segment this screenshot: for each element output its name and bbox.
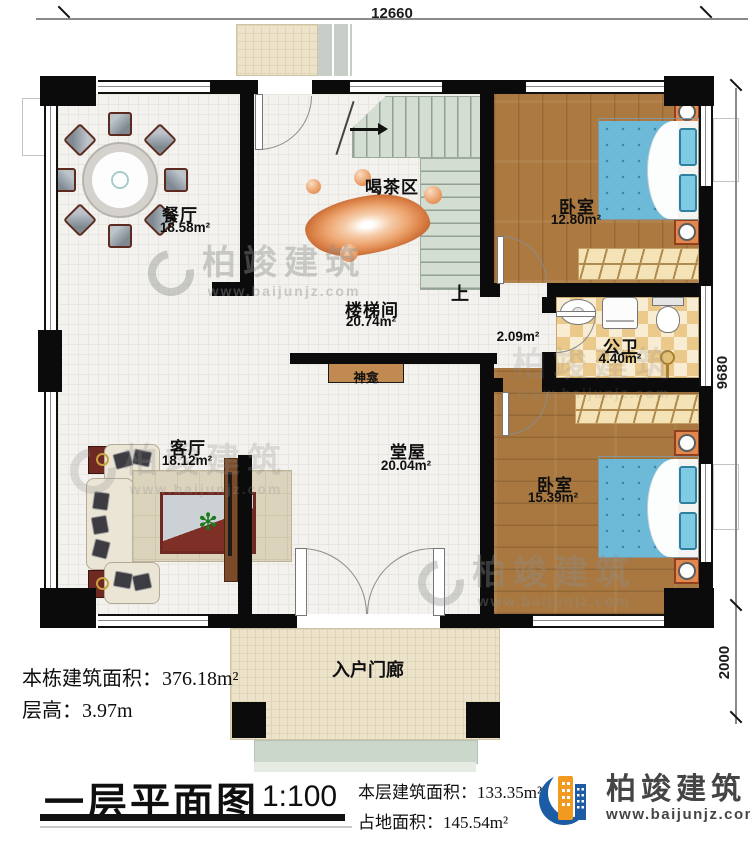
pillow	[679, 174, 697, 212]
wall	[699, 186, 713, 286]
lamp-icon	[678, 223, 696, 241]
wall	[238, 455, 252, 614]
wall	[556, 378, 699, 392]
stair-direction-arrow	[350, 128, 378, 131]
door-leaf	[556, 311, 596, 317]
wall-pier	[38, 330, 62, 392]
porch-column	[466, 702, 500, 738]
stairs-up-label: 上	[451, 280, 469, 306]
door-opening	[258, 80, 312, 94]
wall	[440, 614, 533, 628]
toilet-tank	[652, 297, 684, 306]
nightstand	[674, 558, 700, 584]
plant-icon: ✻	[198, 511, 218, 535]
wall	[290, 353, 497, 364]
wall-corner	[40, 588, 96, 628]
dimension-top: 12660	[371, 5, 413, 22]
shower-head-icon	[660, 350, 675, 365]
title-underline-thin	[40, 826, 352, 828]
brand-name: 柏竣建筑	[606, 773, 750, 806]
sofa-pillow	[113, 571, 134, 590]
pillow	[679, 512, 697, 550]
tv-screen	[228, 472, 232, 556]
dimension-right-upper: 9680	[714, 356, 731, 389]
wall-corner	[664, 76, 714, 106]
pillow	[679, 466, 697, 504]
wall	[480, 94, 494, 297]
wall	[442, 80, 526, 94]
wall	[210, 80, 258, 94]
lamp-icon	[678, 562, 696, 580]
wall	[542, 352, 556, 392]
wall	[208, 614, 297, 628]
wardrobe	[578, 248, 699, 280]
room-label-tea-area: 喝茶区	[365, 173, 419, 198]
sofa-pillow	[132, 448, 153, 467]
tea-stone	[306, 179, 321, 194]
wall	[212, 282, 242, 296]
wall	[542, 297, 556, 313]
dining-chair	[108, 224, 132, 248]
nightstand	[674, 219, 700, 245]
total-area-value: 376.18m²	[162, 668, 239, 690]
door-leaf	[295, 548, 307, 616]
washer-detail	[606, 320, 634, 322]
window	[98, 614, 208, 628]
window	[533, 614, 664, 628]
toilet-bowl	[656, 306, 680, 333]
entrance-opening	[297, 614, 440, 628]
floor-area-line: 本层建筑面积：133.35m²	[358, 778, 542, 803]
rear-landing	[236, 24, 318, 76]
room-area-living: 18.12m²	[162, 453, 212, 468]
wall	[480, 283, 500, 297]
wall	[699, 386, 713, 464]
sofa-pillow	[91, 515, 110, 536]
wall	[547, 283, 699, 297]
window	[350, 80, 442, 94]
bed	[598, 118, 703, 220]
door-leaf	[433, 548, 445, 616]
window	[526, 80, 664, 94]
wardrobe	[575, 394, 699, 424]
porch-label: 入户门廊	[332, 656, 404, 682]
dimension-line-right	[735, 88, 737, 724]
door-leaf	[502, 392, 509, 436]
floor-area-value: 133.35m²	[477, 783, 542, 802]
scale-label: 1:100	[262, 780, 337, 814]
room-area-hall: 20.04m²	[381, 458, 431, 473]
footprint-label: 占地面积：	[358, 813, 443, 832]
dining-chair	[108, 112, 132, 136]
room-area-bathroom: 4.40m²	[599, 351, 642, 366]
dimension-tick	[58, 6, 71, 19]
room-area-bedroom1: 12.80m²	[551, 212, 601, 227]
wall	[480, 353, 494, 614]
dining-chair	[164, 168, 188, 192]
porch-column	[232, 702, 266, 738]
window	[699, 106, 713, 186]
room-area-dining: 18.58m²	[160, 220, 210, 235]
window	[699, 464, 713, 562]
table-decor	[96, 453, 109, 466]
floor-area-label: 本层建筑面积：	[358, 783, 477, 802]
dimension-right-lower: 2000	[716, 646, 733, 679]
tea-stone	[424, 186, 442, 204]
total-area-label: 本栋建筑面积：	[22, 668, 162, 690]
nightstand	[674, 430, 700, 456]
room-area-corridor: 2.09m²	[497, 329, 540, 344]
floor-height-line: 层高：3.97m	[22, 694, 133, 723]
bed	[598, 456, 703, 558]
room-area-stair-hall: 20.74m²	[346, 314, 396, 329]
arrow-head-icon	[378, 123, 388, 135]
floor-plan: 12660 9680 2000	[0, 0, 750, 843]
rear-steps	[318, 24, 352, 76]
door-leaf	[497, 236, 504, 284]
floor-height-value: 3.97m	[82, 700, 133, 722]
brand-logo-icon	[538, 770, 596, 826]
room-area-bedroom2: 15.39m²	[528, 490, 578, 505]
brand-website: www.baijunjz.com	[606, 806, 750, 823]
pillow	[679, 128, 697, 166]
wall-corner	[40, 76, 96, 106]
wall	[240, 94, 254, 296]
lamp-icon	[678, 434, 696, 452]
title-underline	[40, 814, 345, 821]
window	[44, 106, 58, 330]
porch-step	[254, 740, 478, 764]
total-area-line: 本栋建筑面积：376.18m²	[22, 662, 239, 691]
porch-step	[254, 762, 476, 772]
washing-machine	[602, 297, 638, 329]
table-decor	[96, 577, 109, 590]
shower-stem	[666, 365, 669, 378]
window	[699, 286, 713, 386]
brand-logo: 柏竣建筑 www.baijunjz.com	[538, 770, 750, 826]
dimension-tick	[700, 6, 713, 19]
wall-corner	[664, 588, 714, 628]
floor-height-label: 层高：	[22, 700, 82, 722]
window	[98, 80, 210, 94]
footprint-value: 145.54m²	[443, 813, 508, 832]
window	[44, 392, 58, 588]
wall	[312, 80, 350, 94]
footprint-line: 占地面积：145.54m²	[358, 808, 508, 833]
sofa-pillow	[92, 491, 110, 511]
entry-porch-floor	[230, 628, 500, 740]
shrine-label: 神龛	[353, 367, 378, 386]
tea-stone	[340, 244, 358, 262]
door-leaf	[255, 94, 263, 150]
lazy-susan	[111, 171, 129, 189]
wall	[494, 378, 503, 392]
